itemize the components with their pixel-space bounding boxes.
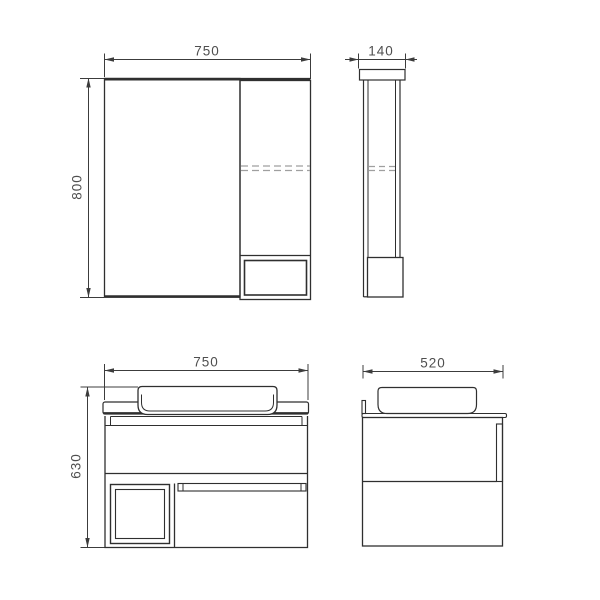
lower-drawer-rail	[178, 484, 306, 492]
niche-box-inner	[116, 490, 165, 539]
side-shelf-dashed-lines	[369, 167, 395, 171]
vanity-body-outline	[105, 416, 308, 548]
vanity-front-view	[81, 364, 309, 548]
technical-drawing-canvas: 750 800 140 750 630 520	[0, 0, 600, 600]
dim-label-mirror-side-depth: 140	[366, 44, 396, 58]
shelf-column	[240, 81, 311, 300]
drawing-linework	[0, 0, 600, 600]
arrowhead-left-icon	[105, 57, 115, 62]
washbasin	[138, 387, 277, 415]
arrowhead-right-icon	[494, 369, 504, 374]
arrowhead-down-icon	[86, 288, 90, 298]
dimension-vanity-front-height	[81, 387, 139, 548]
side-bottom-box	[368, 258, 404, 298]
mirror-cabinet-front-view	[80, 54, 311, 300]
arrowhead-left-icon	[406, 57, 415, 62]
vanity-side-view	[362, 365, 507, 546]
dim-label-vanity-front-height: 630	[69, 451, 83, 481]
arrowhead-left-icon	[363, 369, 373, 374]
counter-back-upstand	[362, 401, 366, 414]
arrowhead-right-icon	[299, 368, 309, 373]
arrowhead-up-icon	[85, 387, 89, 397]
washbasin-side	[378, 388, 477, 414]
drawer-front-strip	[497, 424, 503, 482]
arrowhead-right-icon	[301, 57, 311, 62]
mirror-cabinet-side-view	[345, 54, 417, 298]
arrowhead-left-icon	[105, 368, 115, 373]
dim-label-mirror-front-height: 800	[70, 172, 84, 202]
dim-label-vanity-side-depth: 520	[418, 356, 448, 370]
dim-label-vanity-front-width: 750	[191, 355, 221, 369]
side-top-cap	[360, 70, 406, 81]
mirror-panel	[105, 79, 241, 298]
arrowhead-up-icon	[86, 78, 90, 88]
niche-box-outer	[111, 485, 170, 544]
column-bottom-box	[245, 261, 307, 296]
glass-shelf-dashed-lines	[241, 166, 310, 171]
dim-label-mirror-front-width: 750	[192, 44, 222, 58]
arrowhead-down-icon	[85, 538, 89, 548]
arrowhead-right-icon	[350, 57, 359, 62]
